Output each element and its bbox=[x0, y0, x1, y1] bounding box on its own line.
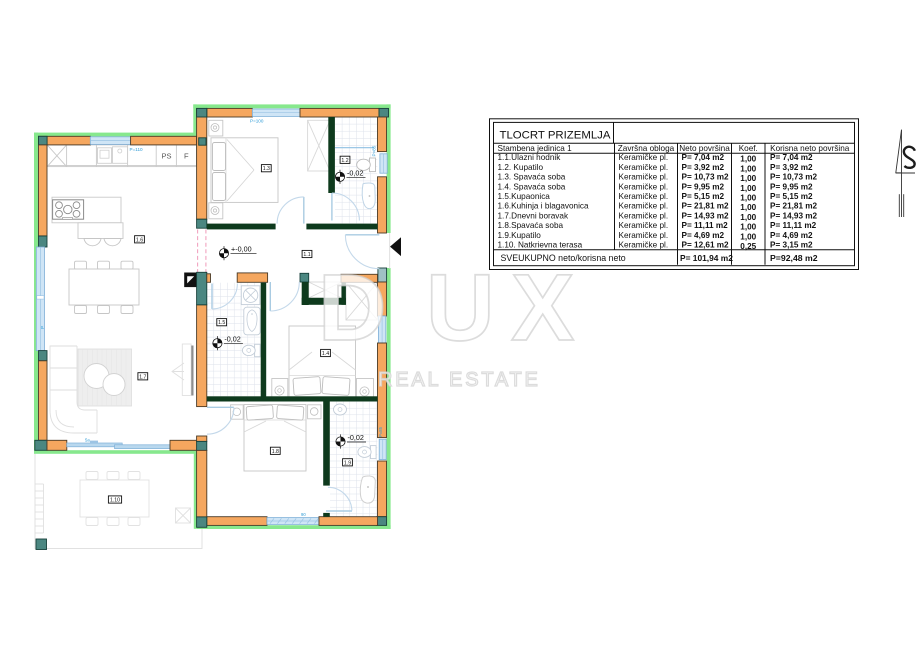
svg-text:1.10: 1.10 bbox=[110, 498, 120, 504]
svg-text:P=110: P=110 bbox=[130, 147, 144, 152]
svg-text:1.8.Spavaća soba: 1.8.Spavaća soba bbox=[498, 221, 564, 230]
svg-text:DUX: DUX bbox=[318, 255, 574, 361]
svg-text:-0,02: -0,02 bbox=[348, 433, 364, 442]
svg-text:Keramičke pl.: Keramičke pl. bbox=[619, 163, 669, 172]
svg-text:Keramičke pl.: Keramičke pl. bbox=[619, 192, 669, 201]
svg-text:1.6.Kuhinja i blagavonica: 1.6.Kuhinja i blagavonica bbox=[498, 202, 589, 211]
svg-text:SVEUKUPNO neto/korisna neto: SVEUKUPNO neto/korisna neto bbox=[501, 253, 626, 263]
svg-text:P= 4,69 m2: P= 4,69 m2 bbox=[682, 231, 725, 240]
svg-text:+-0,00: +-0,00 bbox=[231, 245, 252, 254]
svg-text:P= 4,69 m2: P= 4,69 m2 bbox=[770, 231, 813, 240]
svg-text:1.9.Kupatilo: 1.9.Kupatilo bbox=[498, 231, 542, 240]
svg-text:P= 101,94 m2: P= 101,94 m2 bbox=[680, 253, 733, 263]
svg-text:1,00: 1,00 bbox=[740, 174, 756, 183]
svg-text:P= 3,15 m2: P= 3,15 m2 bbox=[770, 241, 813, 250]
svg-text:1.5: 1.5 bbox=[218, 320, 225, 326]
svg-text:1.3. Spavaća soba: 1.3. Spavaća soba bbox=[498, 173, 566, 182]
svg-text:Stambena jedinica 1: Stambena jedinica 1 bbox=[498, 144, 573, 153]
svg-text:Keramičke pl.: Keramičke pl. bbox=[619, 211, 669, 220]
svg-text:1,00: 1,00 bbox=[740, 184, 756, 193]
svg-text:P= 7,04 m2: P= 7,04 m2 bbox=[682, 153, 725, 162]
svg-text:1.7.Dnevni boravak: 1.7.Dnevni boravak bbox=[498, 211, 569, 220]
svg-text:P=85: P=85 bbox=[372, 145, 377, 156]
svg-text:P= 9,95 m2: P= 9,95 m2 bbox=[770, 182, 813, 191]
svg-text:P= 11,11 m2: P= 11,11 m2 bbox=[770, 221, 817, 230]
svg-text:1,00: 1,00 bbox=[740, 223, 756, 232]
svg-text:P= 3,92 m2: P= 3,92 m2 bbox=[682, 163, 725, 172]
svg-text:Keramičke pl.: Keramičke pl. bbox=[619, 202, 669, 211]
svg-text:1.7: 1.7 bbox=[139, 374, 146, 380]
svg-text:1.9: 1.9 bbox=[344, 460, 351, 466]
svg-text:1.4. Spavaća soba: 1.4. Spavaća soba bbox=[498, 182, 566, 191]
svg-text:P= 14,93 m2: P= 14,93 m2 bbox=[770, 211, 818, 220]
svg-text:Keramičke pl.: Keramičke pl. bbox=[619, 231, 669, 240]
svg-text:P= 7,04 m2: P= 7,04 m2 bbox=[770, 153, 813, 162]
svg-text:P= 5,15 m2: P= 5,15 m2 bbox=[682, 192, 725, 201]
svg-text:P= 10,73 m2: P= 10,73 m2 bbox=[682, 173, 730, 182]
svg-text:Koef.: Koef. bbox=[739, 144, 758, 153]
svg-text:1.10. Natkrievna terasa: 1.10. Natkrievna terasa bbox=[498, 241, 583, 250]
svg-text:P= 10,73 m2: P= 10,73 m2 bbox=[770, 173, 818, 182]
svg-text:1,00: 1,00 bbox=[740, 203, 756, 212]
svg-text:90: 90 bbox=[301, 512, 306, 517]
svg-text:1,00: 1,00 bbox=[740, 194, 756, 203]
svg-text:Keramičke pl.: Keramičke pl. bbox=[619, 173, 669, 182]
svg-text:TLOCRT PRIZEMLJA: TLOCRT PRIZEMLJA bbox=[500, 130, 611, 142]
svg-text:P= 9,95 m2: P= 9,95 m2 bbox=[682, 182, 725, 191]
svg-text:1,00: 1,00 bbox=[740, 213, 756, 222]
svg-text:1.8: 1.8 bbox=[272, 449, 279, 455]
svg-text:P= 12,61 m2: P= 12,61 m2 bbox=[682, 241, 730, 250]
svg-text:1.6: 1.6 bbox=[136, 237, 143, 243]
svg-text:P: P bbox=[40, 326, 45, 329]
svg-text:P=100: P=100 bbox=[250, 119, 264, 124]
svg-text:Keramičke pl.: Keramičke pl. bbox=[619, 182, 669, 191]
svg-text:1,00: 1,00 bbox=[740, 155, 756, 164]
svg-text:Korisna neto površina: Korisna neto površina bbox=[770, 144, 850, 153]
svg-text:1.2. Kupatilo: 1.2. Kupatilo bbox=[498, 163, 544, 172]
svg-text:1,00: 1,00 bbox=[740, 232, 756, 241]
svg-text:P= 3,92 m2: P= 3,92 m2 bbox=[770, 163, 813, 172]
svg-text:P=85: P=85 bbox=[378, 426, 383, 437]
svg-text:F: F bbox=[184, 152, 189, 161]
svg-text:1.5.Kupaonica: 1.5.Kupaonica bbox=[498, 192, 551, 201]
svg-text:PS: PS bbox=[161, 152, 171, 161]
svg-text:P= 21,81 m2: P= 21,81 m2 bbox=[770, 202, 818, 211]
svg-text:P= 21,81 m2: P= 21,81 m2 bbox=[682, 202, 730, 211]
svg-text:REAL ESTATE: REAL ESTATE bbox=[378, 369, 541, 391]
svg-text:1.1: 1.1 bbox=[303, 252, 310, 258]
svg-text:1,00: 1,00 bbox=[740, 164, 756, 173]
svg-text:1.1.Ulazni hodnik: 1.1.Ulazni hodnik bbox=[498, 153, 562, 162]
svg-text:Keramičke pl.: Keramičke pl. bbox=[619, 153, 669, 162]
svg-text:Neto površina: Neto površina bbox=[679, 144, 730, 153]
svg-text:P= 5,15 m2: P= 5,15 m2 bbox=[770, 192, 813, 201]
svg-text:Završna obloga: Završna obloga bbox=[618, 144, 675, 153]
svg-text:1.3: 1.3 bbox=[263, 166, 270, 172]
svg-text:P=92,48 m2: P=92,48 m2 bbox=[770, 253, 818, 263]
svg-text:-0,02: -0,02 bbox=[347, 168, 363, 177]
svg-text:1.2: 1.2 bbox=[341, 158, 348, 164]
svg-text:P= 14,93 m2: P= 14,93 m2 bbox=[682, 211, 730, 220]
svg-text:Keramičke pl.: Keramičke pl. bbox=[619, 241, 669, 250]
svg-text:-0,02: -0,02 bbox=[224, 335, 240, 344]
svg-text:P= 11,11 m2: P= 11,11 m2 bbox=[682, 221, 729, 230]
svg-text:5a: 5a bbox=[85, 438, 90, 443]
svg-text:Keramičke pl.: Keramičke pl. bbox=[619, 221, 669, 230]
